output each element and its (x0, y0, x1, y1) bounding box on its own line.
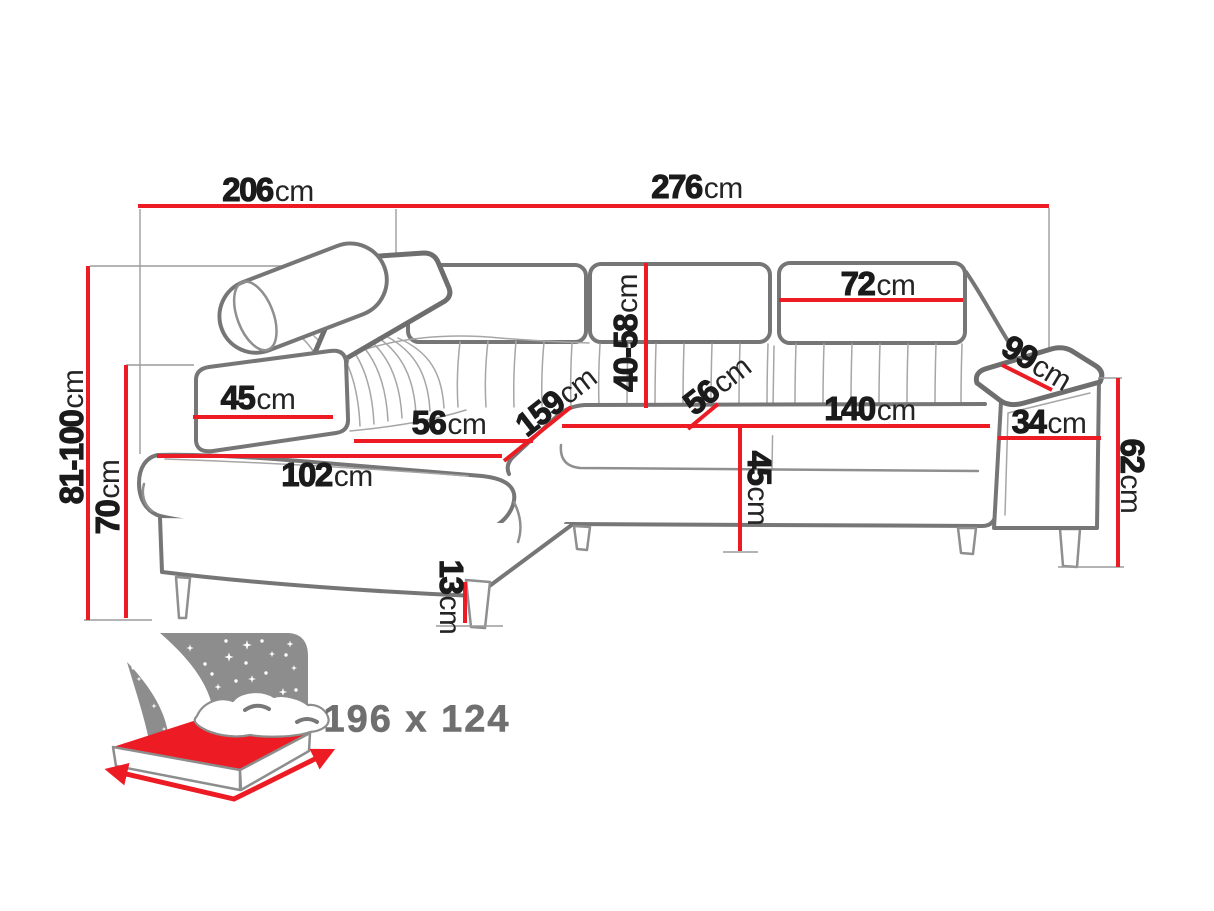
dim-label-overall-width: 276cm (651, 170, 743, 204)
dim-value: 140 (824, 390, 875, 427)
dim-label-overall-depth-left: 206cm (222, 173, 314, 207)
dim-value: 72 (841, 265, 875, 302)
rib (935, 344, 936, 404)
rib (961, 344, 962, 404)
dim-value: 62 (1114, 439, 1151, 473)
dim-unit: cm (433, 595, 466, 634)
dim-label-overall-height-range: 81-100cm (55, 370, 89, 505)
rib (795, 344, 796, 404)
dim-value: 45 (221, 379, 255, 416)
sleeping-area-size: 196 x 124 (323, 699, 510, 741)
dim-label-chaise-seat-width: 56cm (412, 406, 487, 440)
dim-unit: cm (1047, 407, 1086, 440)
dim-unit: cm (611, 274, 644, 313)
dim-value: 276 (651, 168, 702, 205)
night-sky-sliver (127, 662, 169, 740)
dim-value: 45 (741, 451, 778, 485)
rib (655, 344, 656, 405)
dim-label-armrest-width: 34cm (1012, 405, 1087, 439)
sofa-leg (958, 528, 976, 554)
dim-unit: cm (57, 370, 90, 409)
dim-label-leg-height: 13cm (434, 560, 468, 635)
dim-label-seat-width: 140cm (824, 392, 916, 426)
sofa-leg (176, 577, 190, 618)
sofa-dimension-diagram: 206cm 276cm 72cm 40-58cm 99cm 34cm 62cm … (0, 0, 1214, 911)
dim-unit: cm (1114, 474, 1147, 513)
dim-unit: cm (447, 408, 486, 441)
rib (767, 344, 768, 405)
bed-icon (109, 633, 331, 799)
dim-unit: cm (876, 269, 915, 302)
base-bottom-edge (566, 474, 998, 526)
dim-label-back-cushion-width: 72cm (841, 267, 916, 301)
dim-value: 40-58 (607, 315, 644, 392)
dim-unit: cm (275, 175, 314, 208)
dim-label-armrest-height: 62cm (1115, 439, 1149, 514)
rib (485, 341, 488, 407)
dim-label-seat-height: 45cm (742, 451, 776, 526)
sofa-leg (1060, 529, 1080, 567)
rib (457, 342, 460, 407)
rib (374, 335, 416, 414)
dim-unit: cm (741, 486, 774, 525)
dim-value: 13 (433, 560, 470, 594)
dim-value: 70 (89, 501, 126, 535)
dim-unit: cm (877, 394, 916, 427)
backrest-right-edge (966, 272, 1008, 341)
dim-value: 81-100 (53, 411, 90, 505)
dim-label-armrest-front-height: 70cm (91, 460, 125, 535)
dim-unit: cm (256, 383, 295, 416)
dim-unit: cm (334, 460, 373, 493)
dim-value: 56 (412, 404, 446, 441)
dim-value: 34 (1012, 403, 1046, 440)
dim-label-backrest-height: 40-58cm (609, 274, 643, 392)
dim-unit: cm (704, 172, 743, 205)
dim-value: 206 (222, 171, 273, 208)
chaise-base (160, 518, 573, 596)
diagram-artwork (0, 0, 1214, 911)
rib (599, 344, 600, 405)
dim-label-chaise-front-width: 102cm (281, 458, 373, 492)
dim-unit: cm (93, 460, 126, 499)
dim-value: 102 (281, 456, 332, 493)
sofa-leg (574, 526, 590, 550)
dim-label-side-cushion-depth: 45cm (221, 381, 296, 415)
rib (514, 341, 516, 407)
sleeping-area-label: 196 x 124 (323, 699, 510, 742)
